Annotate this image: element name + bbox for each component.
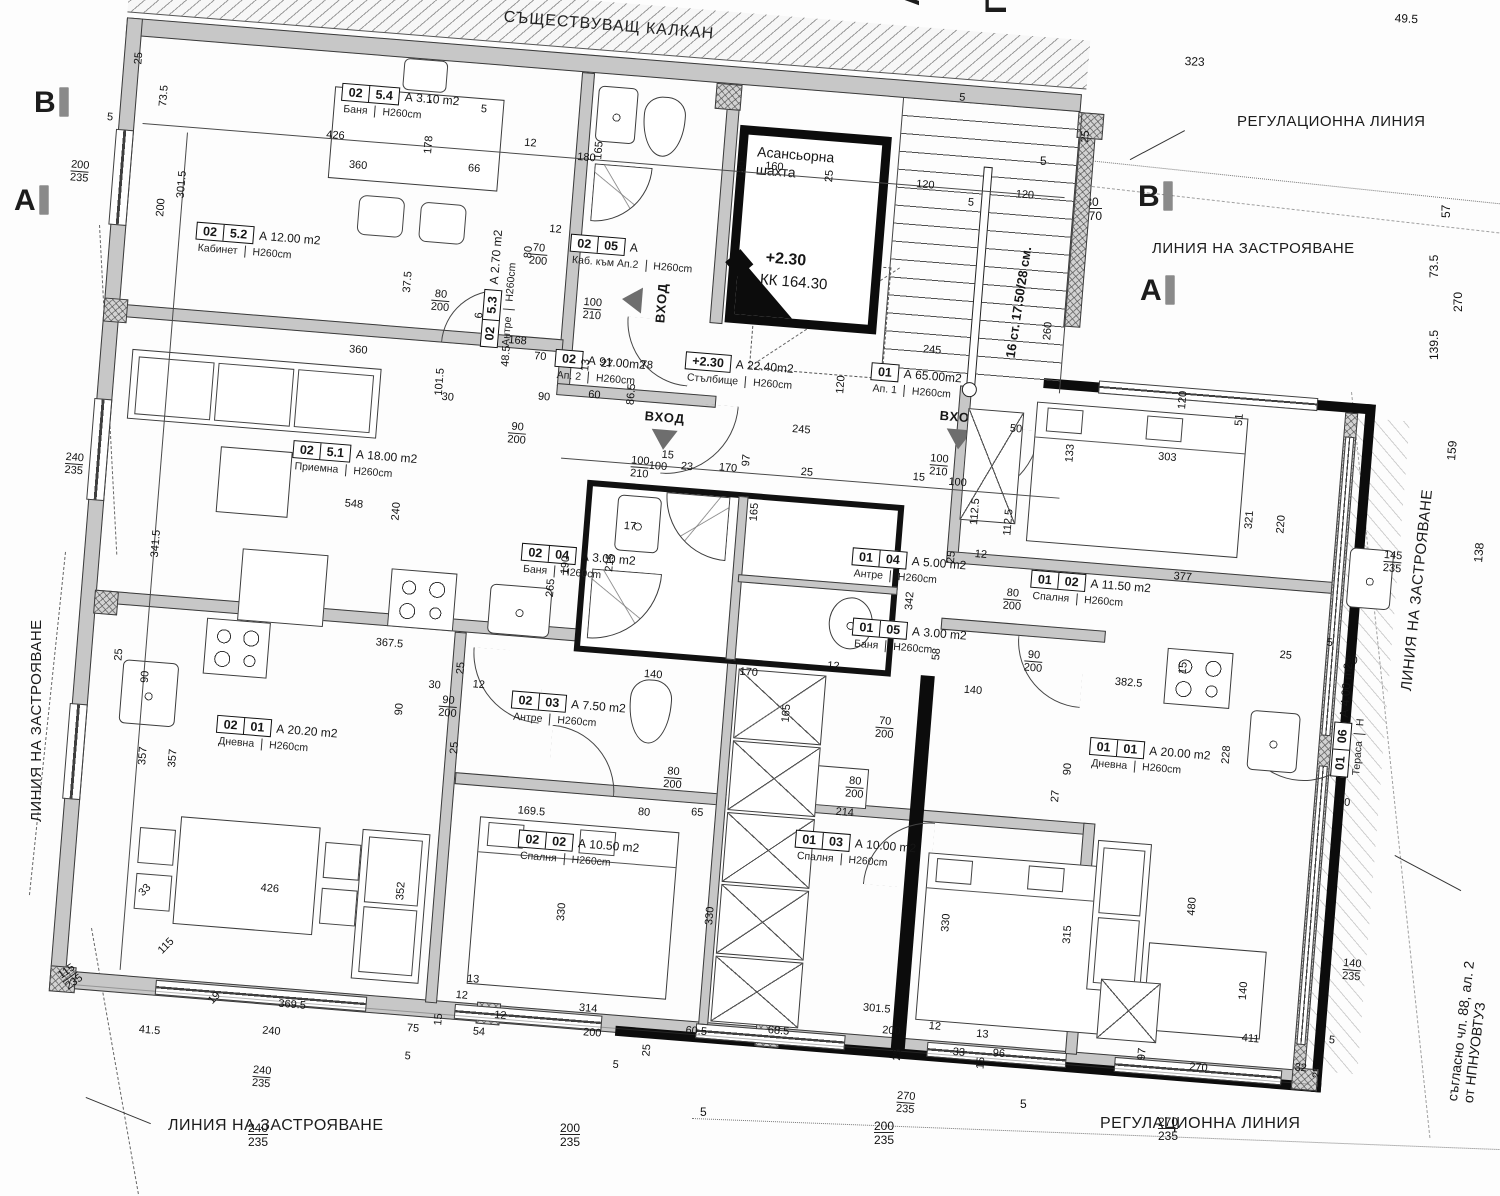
- dimension-label: 228: [1221, 745, 1233, 764]
- dimension-label: 165: [749, 503, 761, 522]
- dimension-label: 382.5: [1114, 677, 1142, 690]
- dimension-label: 260: [1042, 321, 1054, 340]
- kitchen-sink-icon: [118, 659, 179, 727]
- sink-icon: [614, 494, 662, 553]
- dimension-label: 100: [948, 477, 967, 489]
- room-code-box: 025.4: [341, 83, 401, 106]
- dimension-label: 13: [580, 359, 592, 372]
- window-0102: [1098, 380, 1318, 411]
- dimension-label: 32: [1294, 1062, 1307, 1074]
- dimension-label: 97: [1137, 1047, 1149, 1060]
- dimension-label: 80200: [845, 776, 865, 801]
- dimension-label: 270: [1189, 1062, 1208, 1074]
- dimension-label: 90200: [438, 695, 458, 720]
- dimension-label: 360: [349, 344, 368, 356]
- room-code-box: 0202: [518, 829, 574, 851]
- chair: [137, 827, 176, 866]
- room-label-02-01: 0201А 20.20 m2ДневнаH260cm: [215, 715, 338, 757]
- dimension-label: 15: [912, 472, 925, 484]
- dimension-label: 341.5: [150, 529, 163, 557]
- room-label-01-01: 0101А 20.00 m2ДневнаH260cm: [1088, 737, 1211, 779]
- dimension-label: 120: [835, 375, 847, 394]
- dimension-label: 70200: [875, 716, 895, 741]
- dimension-label: 97: [741, 454, 753, 467]
- dimension-label: 314: [579, 1003, 598, 1015]
- dimension-label: 5: [1328, 1035, 1335, 1046]
- dimension-label: 70200: [528, 242, 548, 267]
- dimension-label: 139.5: [1428, 330, 1440, 360]
- dimension-label: 330: [704, 906, 716, 925]
- dimension-label: 480: [1186, 897, 1198, 916]
- dimension-label: 12: [827, 661, 840, 673]
- dimension-label: 342: [904, 591, 916, 610]
- room-label-02-03: 0203А 7.50 m2АнтреH260cm: [510, 690, 627, 731]
- room-code-box: 0104: [851, 547, 907, 569]
- legal-note: съгласно чл. 88, ал. 2 от НПНУОВТУЗ: [1444, 960, 1493, 1104]
- dimension-label: 140235: [1342, 958, 1362, 983]
- dimension-label: 13: [467, 974, 480, 986]
- dimension-label: 75: [406, 1023, 419, 1035]
- leader-line: [1395, 855, 1462, 891]
- dimension-label: 100210: [630, 455, 650, 480]
- dimension-label: 15: [433, 1013, 445, 1026]
- dimension-label: 200235: [70, 159, 90, 184]
- bottom-regulation-dotted: [692, 1118, 1499, 1150]
- dimension-label: 190: [560, 556, 572, 575]
- wardrobe-icon: [710, 956, 803, 1029]
- dimension-label: 5: [700, 1106, 707, 1118]
- dimension-label: 37.5: [402, 271, 415, 293]
- dimension-label: 80200: [1002, 588, 1022, 613]
- dimension-label: 80200: [430, 289, 450, 314]
- dimension-label: 357: [167, 749, 179, 768]
- room-label-02-5.1: 025.1А 18.00 m2ПриемнаH260cm: [291, 440, 418, 482]
- dimension-label: 12: [524, 138, 537, 150]
- dimension-label: 80: [637, 807, 650, 819]
- armchair: [216, 446, 293, 518]
- dimension-label: 5: [967, 197, 974, 208]
- door-arc: [547, 725, 619, 797]
- coffee-table: [237, 548, 328, 627]
- section-marker-Г: Г: [980, 0, 1014, 14]
- dimension-label: 145235: [1382, 550, 1402, 575]
- dimension-label: 12: [549, 224, 562, 236]
- room-label-02-5.3: 025.3А 2.70 m2АнтреH260cm: [480, 229, 521, 349]
- section-marker-А: А: [14, 184, 48, 218]
- bed: [1026, 402, 1249, 559]
- room-label-02-05: 0205АКаб. към Ап.2H260cm: [569, 234, 695, 276]
- dimension-label: 200235: [560, 1122, 580, 1148]
- dimension-label: 200: [882, 1025, 901, 1037]
- dimension-label: 270: [1452, 292, 1464, 312]
- stove-icon: [1163, 648, 1233, 709]
- dimension-label: 68.5: [767, 1025, 789, 1038]
- dimension-label: 215: [604, 553, 616, 572]
- dimension-label: 25: [1279, 650, 1292, 662]
- dimension-label: 426: [260, 883, 279, 895]
- stair-start-circle: [961, 382, 977, 398]
- dimension-label: 165: [781, 704, 793, 723]
- dimension-label: 12: [455, 990, 468, 1002]
- dimension-label: 240235: [64, 452, 84, 477]
- dimension-label: 25: [824, 170, 836, 183]
- room-code-box: 0201: [216, 715, 272, 737]
- dimension-label: 245: [792, 424, 811, 436]
- dimension-label: 160: [765, 161, 784, 173]
- chair: [356, 195, 405, 239]
- dimension-label: 301.5: [863, 1003, 891, 1016]
- room-code-box: +2.30: [685, 351, 732, 373]
- chair: [323, 842, 362, 881]
- dimension-label: 100210: [582, 297, 602, 322]
- dimension-label: 96: [992, 1048, 1005, 1060]
- dimension-label: 48.5: [500, 345, 513, 367]
- dimension-label: 240: [391, 502, 403, 521]
- dimension-label: 200: [583, 1027, 602, 1039]
- dimension-label: 70: [534, 351, 547, 363]
- dimension-label: 367.5: [375, 637, 403, 650]
- dimension-label: 12: [472, 679, 485, 691]
- dimension-label: 301.5: [176, 170, 189, 198]
- dimension-label: 51: [1234, 413, 1246, 426]
- dimension-label: 100210: [929, 453, 949, 478]
- dimension-label: 30: [428, 680, 441, 692]
- section-marker-А: А: [893, 0, 927, 6]
- kitchen-sink-icon: [487, 583, 553, 638]
- dimension-label: 112.5: [1002, 509, 1015, 537]
- dimension-label: 27: [600, 358, 613, 370]
- wardrobe-icon: [1096, 979, 1161, 1044]
- dimension-label: 25: [641, 1044, 653, 1057]
- room-code-box: 0205: [570, 234, 626, 256]
- entrance-label-ap2: ВХОД: [644, 408, 686, 426]
- dimension-label: 25: [133, 52, 145, 65]
- dimension-label: 60: [588, 390, 601, 402]
- dimension-label: 170: [718, 462, 737, 474]
- room-code-box: 0102: [1030, 570, 1086, 592]
- dimension-label: 58: [931, 648, 943, 661]
- dimension-label: 120: [1015, 189, 1034, 201]
- entrance-arrow-office: [621, 286, 643, 314]
- floor-plan-canvas: РЕГУЛАЦИОННА ЛИНИЯ ЛИНИЯ НА ЗАСТРОЯВАНЕ …: [0, 0, 1500, 1196]
- dimension-label: 200: [155, 198, 167, 217]
- dimension-label: 5: [480, 104, 487, 115]
- dimension-label: 15: [975, 1057, 987, 1070]
- dimension-label: 25: [449, 741, 461, 754]
- dimension-label: 90: [537, 392, 550, 404]
- dimension-label: 6: [474, 312, 485, 319]
- dimension-label: 73.5: [1428, 255, 1440, 278]
- entrance-arrow-ap2: [650, 429, 678, 451]
- dimension-label: 5: [1326, 638, 1333, 649]
- room-code-box: 0101: [1089, 737, 1145, 759]
- dimension-label: 25: [1080, 130, 1092, 143]
- room-code-box: 025.1: [292, 440, 352, 463]
- dimension-label: 33: [952, 1047, 965, 1059]
- dimension-label: 15: [1178, 662, 1190, 675]
- room-code-box: 0106: [1330, 722, 1352, 778]
- elevator-shaft: Асансьорна шахта: [724, 125, 891, 335]
- dimension-label: 90: [1062, 763, 1074, 776]
- dimension-label: 25: [800, 467, 813, 479]
- room-label-02-5.2: 025.2А 12.00 m2КабинетH260cm: [194, 222, 321, 264]
- dimension-label: 90200: [1023, 649, 1043, 674]
- dimension-label: 12: [928, 1021, 941, 1033]
- room-code-box: 025.2: [195, 222, 255, 245]
- dimension-label: 50: [1009, 424, 1022, 436]
- dimension-label: 352: [395, 881, 407, 900]
- sofa: [351, 829, 431, 984]
- dimension-label: 49.5: [1394, 12, 1418, 25]
- dimension-label: 90200: [507, 421, 527, 446]
- chair: [319, 888, 358, 927]
- room-code-box: 01: [870, 362, 899, 382]
- room-code-box: 0105: [852, 618, 908, 640]
- dimension-label: 57: [1440, 205, 1452, 218]
- dimension-label: 240: [262, 1025, 281, 1037]
- dimension-label: 73.5: [158, 85, 171, 107]
- dimension-label: 140: [1238, 981, 1250, 1000]
- dimension-label: 5: [959, 92, 966, 103]
- dimension-label: 120: [1177, 391, 1189, 410]
- dimension-label: 138: [1472, 542, 1486, 563]
- dimension-label: 60.5: [685, 1025, 707, 1038]
- dimension-label: 17: [623, 521, 636, 533]
- dimension-label: 13: [976, 1029, 989, 1041]
- dimension-label: 240235: [251, 1065, 271, 1090]
- dimension-label: 78: [640, 360, 653, 372]
- dimension-label: 120: [916, 179, 935, 191]
- dimension-label: 140: [644, 669, 663, 681]
- dimension-label: 65: [691, 807, 704, 819]
- dimension-label: 159: [1445, 440, 1459, 461]
- dimension-label: 426: [326, 130, 345, 142]
- window-left-1: [108, 129, 134, 226]
- dimension-label: 12: [974, 549, 987, 561]
- dimension-label: 25: [946, 551, 958, 564]
- entrance-label-office: ВХОД: [652, 282, 670, 324]
- dimension-label: 5: [404, 1051, 411, 1062]
- dimension-label: 100: [648, 461, 667, 473]
- dimension-label: 5: [106, 112, 113, 123]
- dimension-label: 200235: [874, 1120, 894, 1146]
- toilet-icon: [627, 678, 674, 745]
- toilet-icon: [641, 95, 688, 158]
- dimension-label: 90: [394, 703, 406, 716]
- kitchen-sink-icon: [1246, 710, 1301, 774]
- dimension-label: 214: [835, 807, 854, 819]
- dimension-label: 357: [137, 746, 149, 765]
- leader-line: [86, 1097, 151, 1124]
- dimension-label: 270235: [896, 1091, 916, 1116]
- dining-table: [172, 816, 320, 935]
- shower-icon: [590, 163, 652, 225]
- dimension-label: 112.5: [969, 498, 982, 526]
- dimension-label: 170: [739, 667, 758, 679]
- dimension-label: 25: [1312, 1066, 1324, 1079]
- dimension-label: 245: [922, 344, 941, 356]
- stove-icon: [387, 568, 457, 631]
- dimension-label: 323: [1184, 55, 1205, 68]
- dimension-label: 190: [736, 160, 748, 179]
- wardrobe-icon: [727, 740, 820, 817]
- dimension-label: 5: [612, 1060, 619, 1071]
- stove-icon: [203, 618, 271, 679]
- room-code-box: 0203: [511, 690, 567, 712]
- dimension-label: 27: [1050, 790, 1062, 803]
- pier: [715, 83, 743, 111]
- dimension-label: 169.5: [517, 805, 545, 818]
- floor-plan: СЪЩЕСТВУВАЩ КАЛКАН: [54, 18, 1401, 1127]
- dimension-label: 23: [680, 461, 693, 473]
- dimension-label: 360: [348, 160, 367, 172]
- dimension-label: 115: [156, 936, 176, 956]
- dimension-label: 270235: [1158, 1116, 1178, 1142]
- dimension-label: 321: [1244, 510, 1256, 529]
- window-bottom-1: [155, 980, 368, 1012]
- chair: [418, 202, 467, 246]
- sink-icon: [595, 85, 639, 144]
- building-line-label-left: ЛИНИЯ НА ЗАСТРОЯВАНЕ: [28, 619, 45, 822]
- dimension-label: 80200: [663, 766, 683, 791]
- window-left-2: [86, 398, 112, 501]
- dimension-label: 54: [472, 1026, 485, 1038]
- dimension-label: 303: [1158, 451, 1177, 463]
- dimension-label: 265: [545, 578, 557, 597]
- dimension-label: 12: [494, 1010, 507, 1022]
- dimension-label: 86.5: [626, 383, 639, 405]
- dimension-label: 66: [468, 163, 481, 175]
- dimension-label: 220: [1275, 515, 1287, 534]
- pier: [103, 297, 129, 323]
- dimension-label: 369.5: [278, 999, 306, 1012]
- dimension-label: 330: [940, 913, 952, 932]
- building-line-label-right: ЛИНИЯ НА ЗАСТРОЯВАНЕ: [1398, 488, 1436, 691]
- dimension-label: 140: [963, 685, 982, 697]
- window-left-3: [62, 703, 88, 800]
- room-code-box: 0103: [795, 830, 851, 852]
- dimension-label: 330: [556, 902, 568, 921]
- kalkan-label: СЪЩЕСТВУВАЩ КАЛКАН: [493, 8, 725, 44]
- dimension-label: 411: [1241, 1033, 1259, 1045]
- dimension-label: 168: [508, 335, 527, 347]
- dimension-label: 60: [1345, 655, 1358, 667]
- room-label-01: 01А 65.00m2Ап. 1H260cm: [869, 362, 962, 401]
- dimension-label: 240235: [248, 1122, 268, 1148]
- section-marker-В: В: [34, 86, 68, 120]
- dimension-label: 548: [344, 498, 363, 510]
- pier: [93, 590, 119, 616]
- sofa: [1086, 840, 1152, 994]
- dimension-label: 25: [455, 662, 467, 675]
- dimension-label: 377: [1173, 571, 1192, 583]
- building-line-label-bottom: ЛИНИЯ НА ЗАСТРОЯВАНЕ: [168, 1117, 384, 1135]
- dimension-label: 25: [113, 648, 125, 661]
- dimension-label: 25: [892, 1048, 904, 1061]
- dimension-label: 178: [423, 135, 435, 154]
- dimension-label: 315: [1062, 925, 1074, 944]
- dimension-label: 90: [140, 670, 152, 683]
- dimension-label: 101.5: [434, 368, 447, 396]
- dimension-label: 90: [1338, 797, 1351, 809]
- level-mark: +2.30: [765, 249, 807, 270]
- wardrobe-icon: [716, 884, 809, 961]
- dimension-label: 41.5: [138, 1025, 160, 1038]
- dimension-label: 165: [593, 141, 605, 160]
- dimension-label: 133: [1064, 444, 1076, 463]
